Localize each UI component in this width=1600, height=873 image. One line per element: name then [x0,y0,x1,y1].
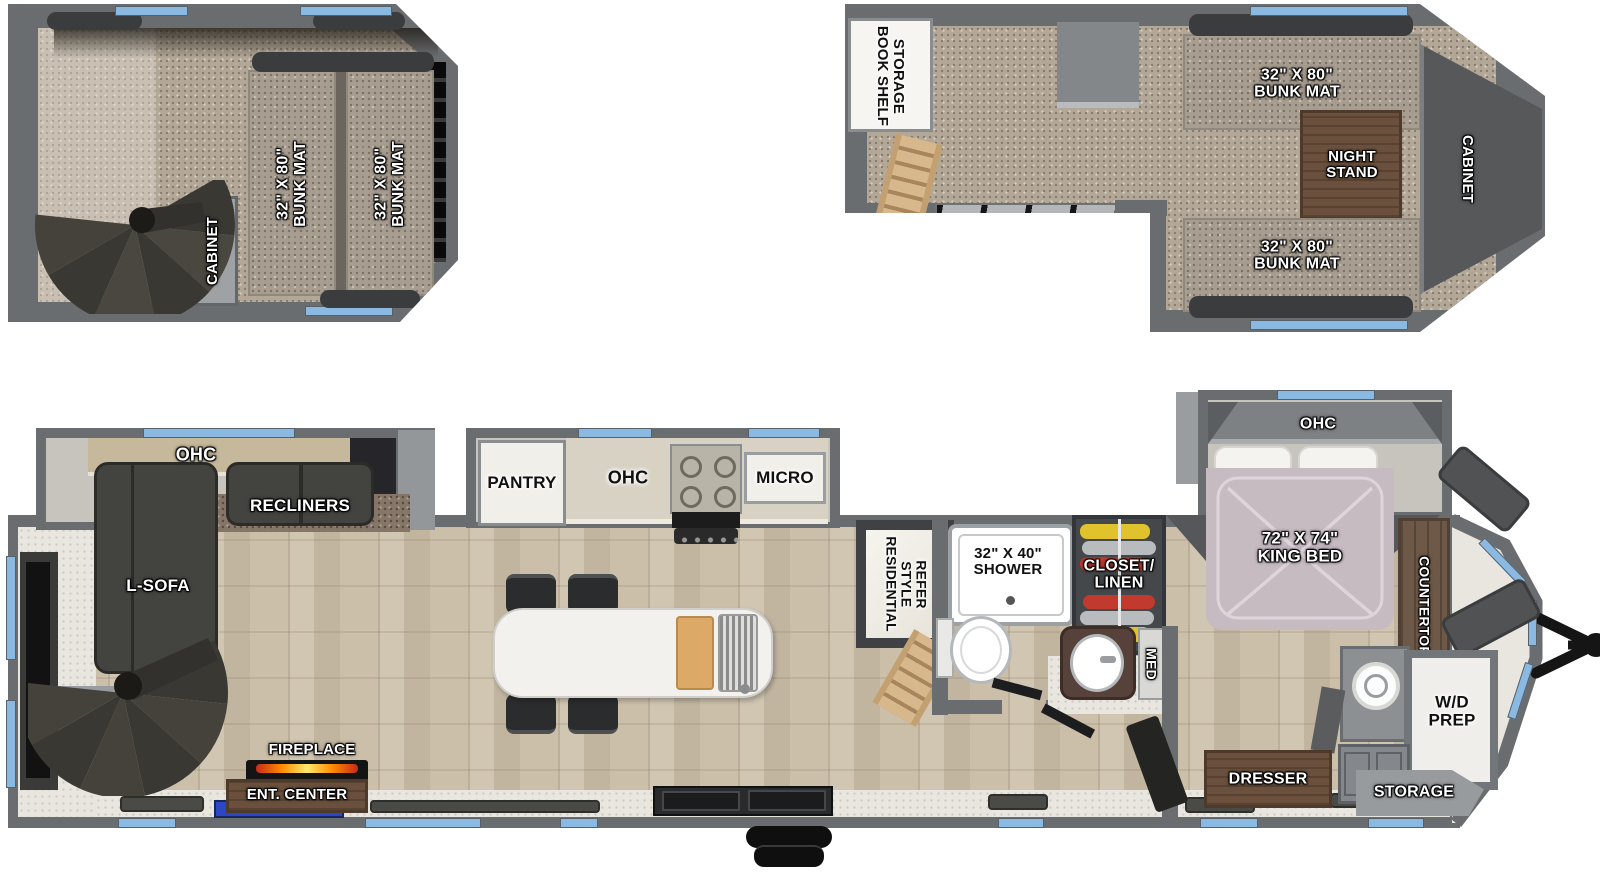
rear-loft-bunk-right-label: 32" X 80" BUNK MAT [373,141,408,227]
fireplace-flame [256,764,358,773]
bath-wall [932,700,1002,714]
dresser-label: DRESSER [1229,770,1308,787]
window [365,818,481,828]
island-sink [718,614,758,692]
sink-faucet-icon [740,684,750,694]
window [560,818,598,828]
washer-door-inner [1364,674,1388,698]
window [1250,6,1408,16]
window [578,428,652,438]
bunk-bolster [1189,14,1413,36]
recliners [226,462,374,526]
loft-step-wall [1150,200,1166,332]
living-ohc-label: OHC [176,445,217,464]
window [143,428,295,438]
bunk-bolster [252,52,434,72]
loft-railing [935,203,1121,218]
micro-label: MICRO [756,469,814,487]
island-stool [568,694,618,734]
fireplace-label: FIREPLACE [269,742,356,758]
vanity-sink [1070,634,1124,692]
front-cabinet [1420,44,1542,294]
pantry-label: PANTRY [487,474,556,492]
spiral-stairs-icon [28,598,242,796]
oven-front [672,512,740,528]
storage-label: STORAGE [1374,783,1454,800]
recliners-label: RECLINERS [250,497,350,515]
closet-label: CLOSET/ LINEN [1084,558,1155,593]
front-cabinet-label: CABINET [1459,135,1475,203]
window [300,6,392,16]
rear-loft: CABINET 32" X 80" BUNK MAT 32" X 80" BUN… [8,4,458,322]
bedroom-ohc-label: OHC [1300,415,1336,432]
island-stool [506,694,556,734]
window [115,6,188,16]
l-sofa-label: L-SOFA [126,577,190,595]
window [748,428,820,438]
ent-center-label: ENT. CENTER [247,787,348,803]
toilet-seat-ring [960,626,1002,674]
shower-label: 32" X 40" SHOWER [974,546,1043,578]
entry-door-panel [748,790,826,811]
bedroom-slide-edge [1176,392,1200,484]
cutting-board [676,616,714,690]
window [1250,320,1408,330]
burner [680,456,702,478]
sink-faucet-icon [1100,656,1116,663]
med-label: MED [1143,648,1158,680]
floorplan-canvas: CABINET 32" X 80" BUNK MAT 32" X 80" BUN… [0,0,1600,873]
closet-clothes [1080,524,1150,539]
window [998,818,1044,828]
loft-overhead-cabinet [1057,22,1139,108]
burner [714,456,736,478]
window [1368,818,1424,828]
book-shelf-storage-label: BOOK SHELF STORAGE [874,26,906,126]
bunk-bolster [1189,296,1413,318]
wd-prep-label: W/D PREP [1428,694,1475,731]
front-loft-bunk-top-label: 32" X 80" BUNK MAT [1254,67,1340,102]
night-stand-label: NIGHT STAND [1326,149,1378,181]
window [1277,390,1375,400]
front-loft: BOOK SHELF STORAGE 32" X 80" BUNK MAT NI… [845,4,1560,332]
bunk-bolster [320,290,420,308]
burner [714,486,736,508]
shower-drain-icon [1006,596,1015,605]
floor-mat [370,800,600,813]
burner [680,486,702,508]
entry-door-panel [662,791,740,811]
window [6,700,16,788]
bath-wall [932,515,948,715]
refer-label: RESIDENTIAL STYLE REFER [883,536,928,632]
bunk-divider [336,70,346,296]
window [1200,818,1258,828]
rear-loft-bunk-left-label: 32" X 80" BUNK MAT [275,141,310,227]
entry-step [754,845,824,867]
kitchen-ohc-label: OHC [608,468,649,487]
window [118,818,176,828]
countertop-label: COUNTERTOP [1416,556,1431,656]
front-loft-bunk-bottom-label: 32" X 80" BUNK MAT [1254,239,1340,274]
rear-loft-cabinet-label: CABINET [205,217,221,285]
closet-clothes [1080,611,1154,625]
floor-mat [988,794,1048,810]
king-bed-label: 72" X 74" KING BED [1258,530,1343,567]
window [6,556,16,660]
range-knobs [674,528,738,544]
bath-wall [1162,626,1178,714]
floor-mat [120,796,204,812]
